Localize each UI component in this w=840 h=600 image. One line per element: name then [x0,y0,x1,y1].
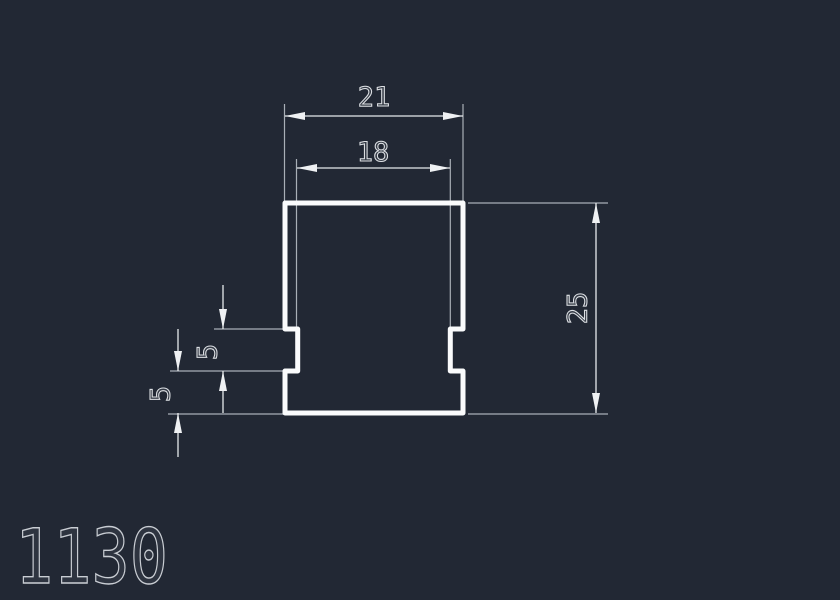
dimension-label-base-height: 5 [146,386,177,402]
arrow-left-icon [297,164,317,172]
arrow-right-icon [430,164,450,172]
arrow-down-icon [174,351,182,371]
dimension-label-notch-height: 5 [193,344,224,360]
arrow-up-icon [174,413,182,433]
dimension-label-overall-height: 25 [563,292,594,325]
arrow-left-icon [285,112,305,120]
dimension-label-outer-width: 21 [358,82,391,113]
dimension-overall-height[interactable]: 25 [468,203,608,414]
profile-outline[interactable] [285,203,463,413]
arrow-down-icon [219,309,227,329]
dimension-label-inner-width: 18 [357,137,390,168]
dimension-notch-height[interactable]: 5 [170,285,298,413]
arrow-up-icon [219,371,227,391]
arrow-down-icon [592,393,600,413]
cad-viewport[interactable]: 21 18 25 5 [0,0,840,600]
dimension-inner-width[interactable]: 18 [297,137,451,329]
arrow-right-icon [443,112,463,120]
drawing-number: 1130 [15,512,168,600]
cad-canvas[interactable]: 21 18 25 5 [0,0,840,600]
arrow-up-icon [592,203,600,223]
